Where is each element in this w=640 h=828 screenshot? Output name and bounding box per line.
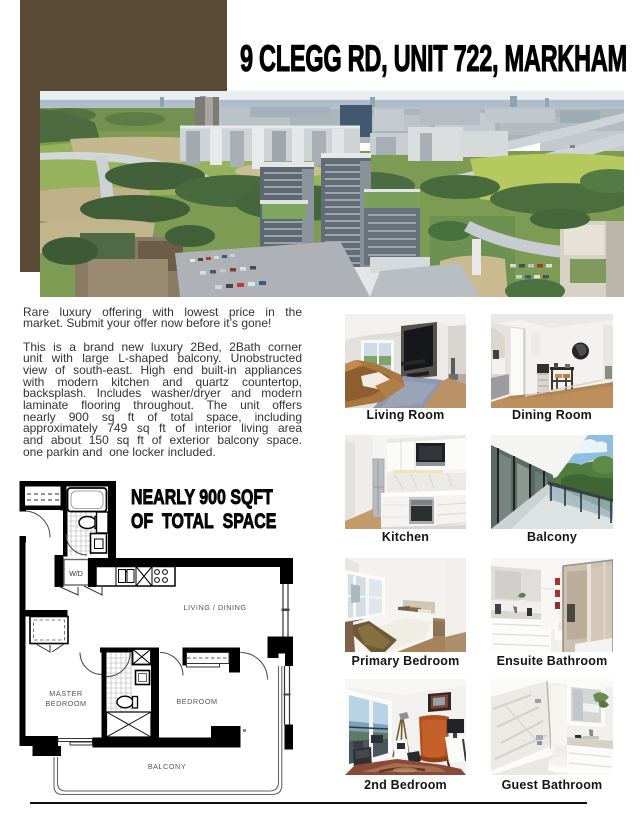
svg-text:MASTER: MASTER xyxy=(49,689,82,698)
svg-text:W/D: W/D xyxy=(69,571,83,578)
svg-text:BEDROOM: BEDROOM xyxy=(176,697,217,706)
svg-text:BALCONY: BALCONY xyxy=(148,762,186,771)
svg-text:LIVING / DINING: LIVING / DINING xyxy=(183,603,246,612)
svg-text:BEDROOM: BEDROOM xyxy=(45,699,86,708)
